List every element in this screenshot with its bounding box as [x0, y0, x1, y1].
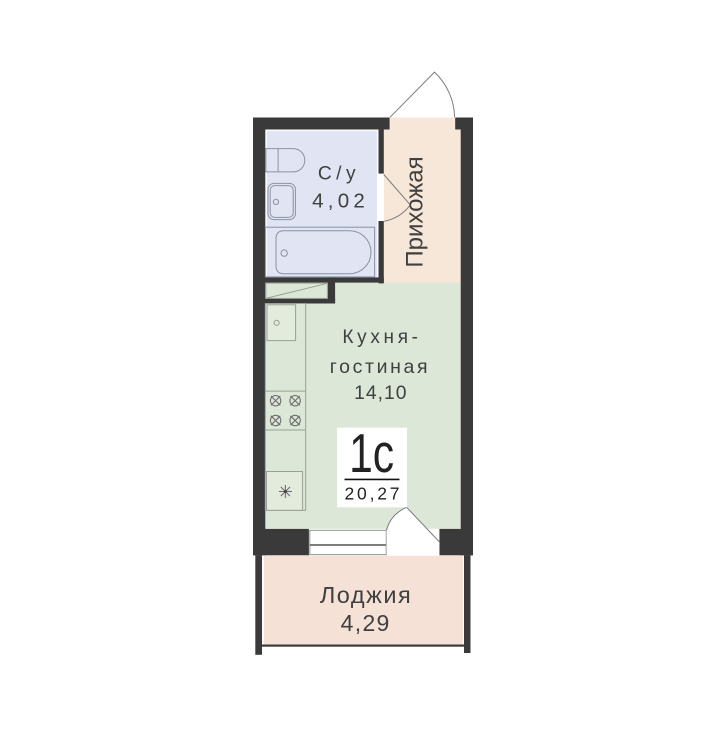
svg-text:гостиная: гостиная — [330, 356, 428, 378]
svg-text:Лоджия: Лоджия — [320, 582, 411, 608]
svg-text:4,29: 4,29 — [341, 610, 390, 636]
svg-text:1с: 1с — [349, 422, 394, 484]
svg-text:С/у: С/у — [318, 164, 356, 185]
svg-text:20,27: 20,27 — [345, 484, 400, 504]
svg-text:14,10: 14,10 — [354, 383, 406, 404]
svg-text:4,02: 4,02 — [312, 190, 365, 213]
svg-text:Прихожая: Прихожая — [402, 156, 429, 267]
